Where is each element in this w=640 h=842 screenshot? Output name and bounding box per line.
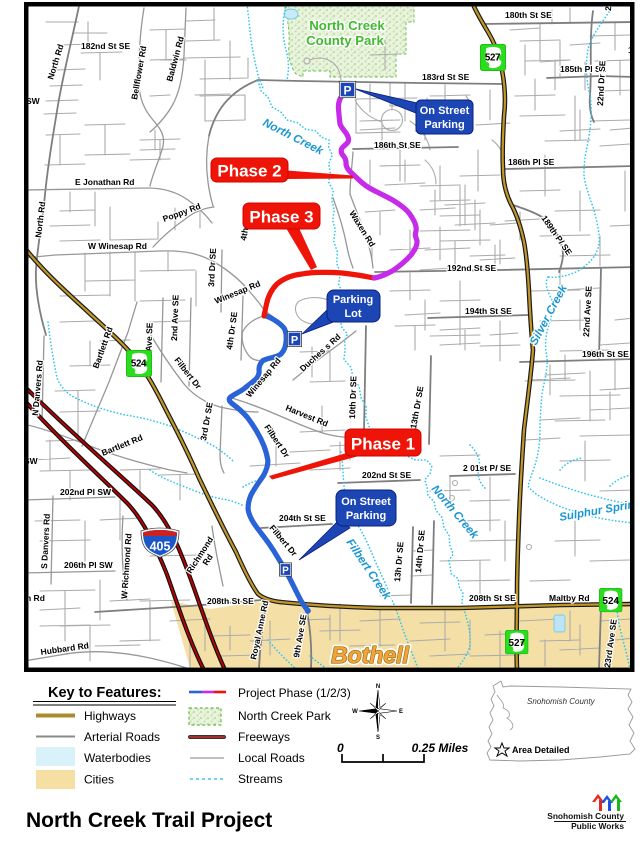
svg-text:524: 524: [602, 596, 619, 607]
svg-text:194th St SE: 194th St SE: [465, 306, 512, 316]
svg-text:Phase 3: Phase 3: [249, 208, 313, 227]
svg-text:P: P: [343, 84, 351, 98]
svg-text:527: 527: [485, 53, 501, 64]
svg-text:204th St SE: 204th St SE: [279, 513, 326, 523]
svg-text:P: P: [282, 565, 289, 576]
svg-text:208th St SE: 208th St SE: [207, 596, 254, 606]
svg-text:E Jonathan Rd: E Jonathan Rd: [75, 177, 135, 187]
svg-text:Project Phase (1/2/3): Project Phase (1/2/3): [238, 686, 351, 700]
svg-text:182nd St SE: 182nd St SE: [81, 41, 130, 51]
svg-text:P: P: [291, 335, 298, 347]
svg-text:Key to Features:: Key to Features:: [48, 685, 162, 701]
svg-text:Bothell: Bothell: [331, 642, 410, 668]
svg-text:Snohomish County: Snohomish County: [527, 697, 596, 706]
svg-text:On Street: On Street: [341, 496, 391, 508]
svg-text:Freeways: Freeways: [238, 730, 290, 744]
svg-text:10th Dr SE: 10th Dr SE: [347, 375, 359, 419]
svg-text:2nd Ave SE: 2nd Ave SE: [169, 294, 181, 341]
svg-text:186th Pl SE: 186th Pl SE: [508, 157, 555, 167]
svg-text:Phase 1: Phase 1: [351, 435, 415, 454]
svg-text:206th Pl SW: 206th Pl SW: [64, 560, 114, 570]
svg-text:North Creek: North Creek: [309, 18, 385, 33]
svg-text:W Winesap Rd: W Winesap Rd: [88, 241, 147, 251]
svg-text:2 01st Pl SE: 2 01st Pl SE: [463, 463, 512, 473]
svg-text:183rd St SE: 183rd St SE: [422, 72, 470, 82]
svg-text:Waterbodies: Waterbodies: [84, 751, 151, 765]
svg-text:North Creek Park: North Creek Park: [238, 709, 332, 723]
svg-text:Streams: Streams: [238, 772, 283, 786]
svg-text:County Park: County Park: [306, 33, 384, 48]
svg-text:3rd Dr SE: 3rd Dr SE: [206, 248, 218, 288]
svg-text:527: 527: [508, 638, 525, 649]
svg-text:Lot: Lot: [344, 308, 361, 320]
svg-text:0.25 Miles: 0.25 Miles: [412, 741, 469, 755]
svg-text:N: N: [376, 684, 380, 690]
svg-text:E: E: [399, 709, 403, 715]
svg-text:Phase 2: Phase 2: [217, 162, 281, 181]
svg-text:On Street: On Street: [420, 105, 470, 117]
svg-text:Highways: Highways: [84, 709, 136, 723]
svg-text:524: 524: [131, 359, 147, 370]
svg-text:Parking: Parking: [333, 294, 373, 306]
svg-text:180th St SE: 180th St SE: [505, 10, 552, 20]
svg-text:202nd Pl SW: 202nd Pl SW: [60, 487, 112, 497]
svg-text:Area Detailed: Area Detailed: [512, 745, 570, 755]
svg-text:202nd St SE: 202nd St SE: [362, 470, 411, 480]
svg-text:Cities: Cities: [84, 773, 114, 787]
svg-text:Maltby Rd: Maltby Rd: [549, 593, 590, 603]
svg-text:W: W: [352, 709, 358, 715]
svg-text:208th St SE: 208th St SE: [469, 593, 516, 603]
svg-text:Arterial Roads: Arterial Roads: [84, 730, 160, 744]
svg-text:196th St SE: 196th St SE: [582, 349, 629, 359]
svg-text:Local Roads: Local Roads: [238, 751, 305, 765]
svg-text:North Creek Trail Project: North Creek Trail Project: [26, 809, 272, 832]
svg-text:Parking: Parking: [424, 119, 464, 131]
svg-text:Public Works: Public Works: [571, 821, 624, 831]
svg-text:Parking: Parking: [346, 510, 386, 522]
svg-text:186th St SE: 186th St SE: [374, 140, 421, 150]
svg-text:S: S: [376, 735, 380, 741]
svg-text:192nd St SE: 192nd St SE: [447, 263, 496, 273]
svg-text:n Rd: n Rd: [26, 593, 45, 603]
svg-text:0: 0: [337, 741, 344, 755]
svg-text:405: 405: [150, 540, 171, 554]
svg-text:Snohomish County: Snohomish County: [547, 811, 624, 821]
